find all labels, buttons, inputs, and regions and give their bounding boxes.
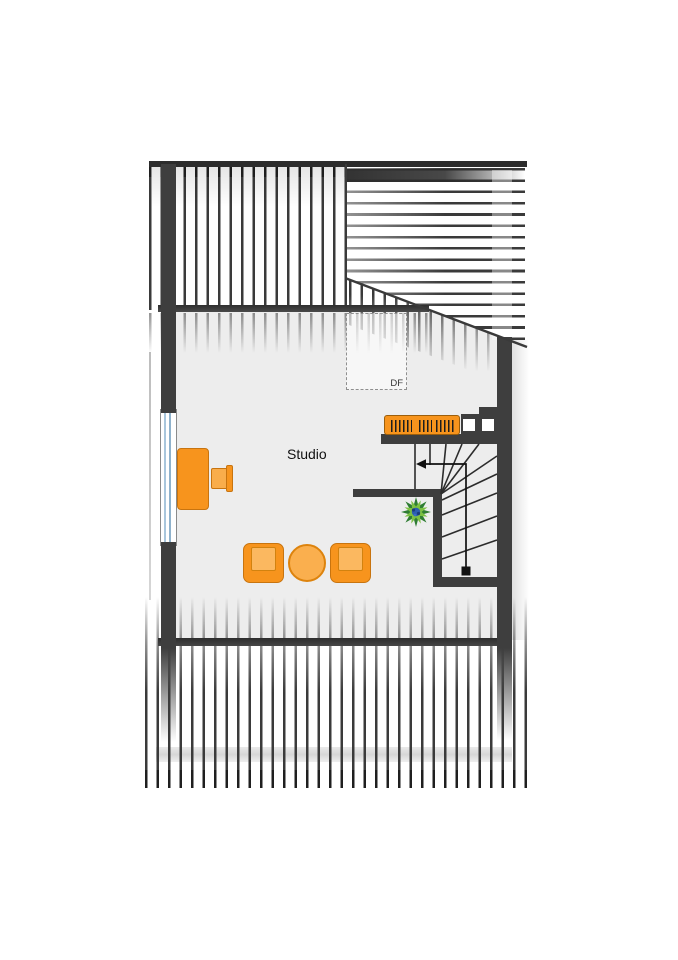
books [391, 420, 412, 432]
floor-plan: DF Studio [0, 0, 678, 960]
armchair-seat [251, 547, 276, 571]
armchair-left [243, 543, 284, 583]
room-label: Studio [287, 446, 327, 462]
books [436, 420, 456, 432]
armchair-right [330, 543, 371, 583]
bookshelf [384, 415, 460, 435]
roof-window: DF [346, 313, 407, 390]
coffee-table [288, 544, 326, 582]
desk [177, 448, 209, 510]
stair-direction-arrow [416, 459, 426, 469]
armchair-seat [338, 547, 363, 571]
stairs-and-lines [0, 0, 678, 960]
books [419, 420, 432, 432]
desk-chair-backrest [226, 465, 233, 492]
roof-window-label: DF [390, 378, 403, 389]
stair-start-marker [462, 567, 471, 576]
stair-treads [415, 444, 497, 559]
plant-icon [401, 497, 431, 527]
